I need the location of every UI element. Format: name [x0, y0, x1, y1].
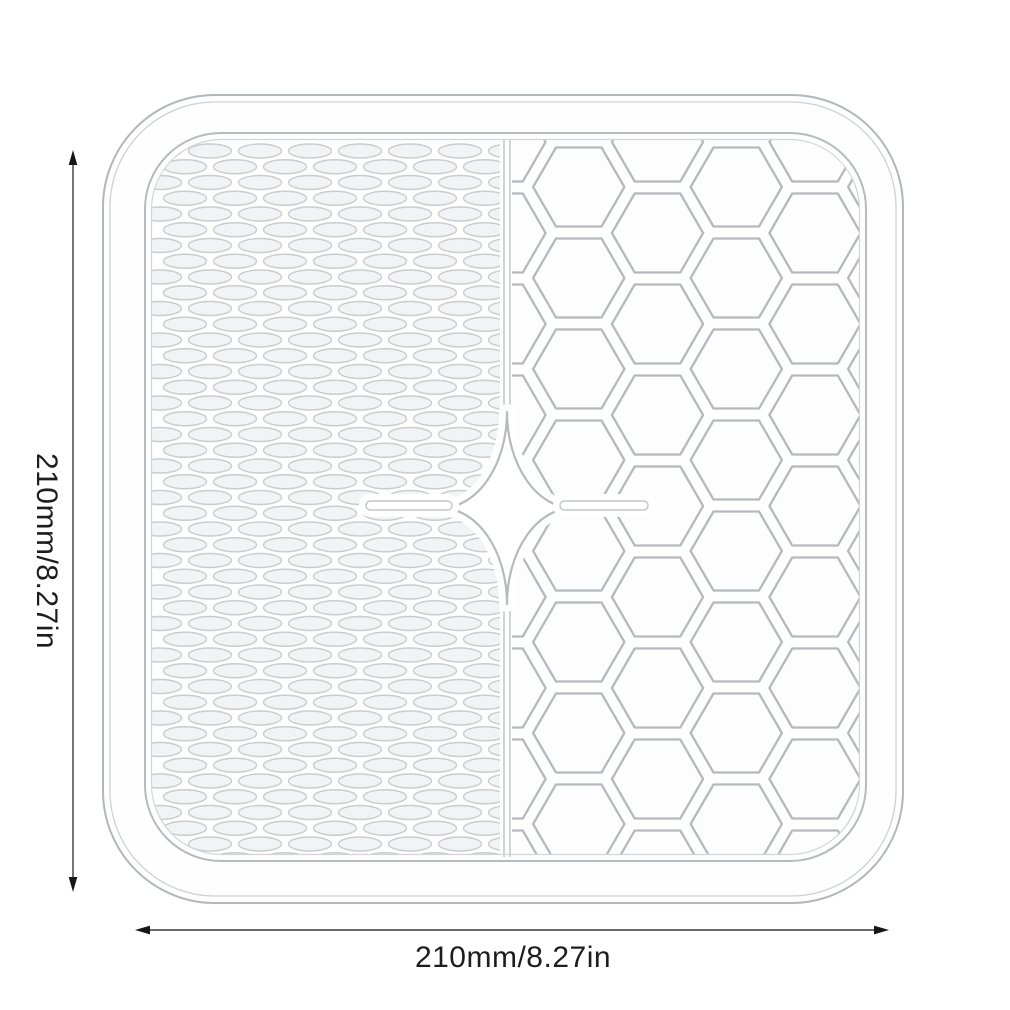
oval-bump: [389, 207, 432, 221]
oval-bump: [214, 443, 257, 457]
oval-bump: [264, 727, 307, 741]
oval-bump: [389, 396, 432, 410]
oval-bump: [439, 648, 482, 662]
oval-bump: [264, 506, 307, 520]
oval-bump: [314, 475, 357, 489]
oval-bump: [439, 617, 482, 631]
oval-bump: [289, 270, 332, 284]
oval-bump: [364, 380, 407, 394]
oval-bump: [364, 412, 407, 426]
oval-bump: [164, 664, 207, 678]
oval-bump: [314, 601, 357, 615]
oval-bump: [264, 538, 307, 552]
oval-bump: [164, 191, 207, 205]
oval-bump: [164, 349, 207, 363]
oval-bump: [314, 538, 357, 552]
oval-bump: [364, 632, 407, 646]
oval-bump: [189, 585, 232, 599]
oval-bump: [289, 459, 332, 473]
oval-bump: [414, 664, 457, 678]
oval-bump: [364, 695, 407, 709]
oval-bump: [289, 491, 332, 505]
oval-bump: [439, 144, 482, 158]
oval-bump: [414, 286, 457, 300]
oval-bump: [389, 648, 432, 662]
oval-bump: [239, 711, 282, 725]
oval-bump: [189, 176, 232, 190]
oval-bump: [314, 695, 357, 709]
oval-bump: [339, 176, 382, 190]
oval-bump: [189, 648, 232, 662]
oval-bump: [239, 333, 282, 347]
oval-bump: [314, 191, 357, 205]
oval-bump: [339, 270, 382, 284]
oval-bump: [214, 664, 257, 678]
oval-bump: [414, 160, 457, 174]
oval-bump: [164, 601, 207, 615]
oval-bump: [289, 743, 332, 757]
oval-bump: [314, 412, 357, 426]
oval-bump: [414, 601, 457, 615]
oval-bump: [389, 554, 432, 568]
oval-bump: [189, 239, 232, 253]
oval-bump: [414, 821, 457, 835]
oval-bump: [214, 380, 257, 394]
oval-bump: [389, 743, 432, 757]
oval-bump: [214, 601, 257, 615]
oval-bump: [214, 790, 257, 804]
oval-bump: [339, 302, 382, 316]
oval-bump: [164, 695, 207, 709]
oval-bump: [164, 727, 207, 741]
oval-bump: [264, 758, 307, 772]
oval-bump: [264, 349, 307, 363]
oval-bump: [289, 176, 332, 190]
oval-bump: [164, 538, 207, 552]
oval-bump: [239, 144, 282, 158]
oval-bump: [239, 617, 282, 631]
oval-bump: [189, 774, 232, 788]
oval-bump: [214, 412, 257, 426]
oval-bump: [364, 349, 407, 363]
oval-bump: [264, 790, 307, 804]
oval-bump: [314, 380, 357, 394]
oval-bump: [389, 239, 432, 253]
oval-bump: [214, 254, 257, 268]
oval-bump: [239, 554, 282, 568]
oval-bump: [264, 160, 307, 174]
oval-bump: [389, 585, 432, 599]
oval-bump: [414, 569, 457, 583]
oval-bump: [414, 317, 457, 331]
oval-bump: [339, 774, 382, 788]
oval-bump: [264, 317, 307, 331]
oval-bump: [414, 695, 457, 709]
oval-bump: [389, 302, 432, 316]
oval-bump: [164, 758, 207, 772]
oval-bump: [239, 837, 282, 851]
oval-bump: [289, 239, 332, 253]
oval-bump: [389, 837, 432, 851]
oval-bump: [439, 396, 482, 410]
oval-bump: [389, 365, 432, 379]
oval-bump: [289, 774, 332, 788]
oval-bump: [339, 680, 382, 694]
oval-bump: [339, 365, 382, 379]
oval-bump: [414, 191, 457, 205]
oval-bump: [189, 806, 232, 820]
oval-bump: [364, 223, 407, 237]
oval-bump: [214, 569, 257, 583]
oval-bump: [339, 239, 382, 253]
oval-bump: [439, 428, 482, 442]
oval-bump: [339, 617, 382, 631]
oval-bump: [439, 585, 482, 599]
oval-bump: [314, 160, 357, 174]
oval-bump: [189, 522, 232, 536]
oval-bump: [289, 617, 332, 631]
oval-bump: [189, 270, 232, 284]
oval-bump: [289, 680, 332, 694]
oval-bump: [389, 711, 432, 725]
oval-bump: [289, 554, 332, 568]
oval-bump: [289, 396, 332, 410]
oval-bump: [289, 648, 332, 662]
oval-bump: [189, 554, 232, 568]
oval-bump: [214, 695, 257, 709]
oval-bump: [314, 758, 357, 772]
oval-bump: [439, 806, 482, 820]
oval-bump: [314, 632, 357, 646]
oval-bump: [364, 727, 407, 741]
oval-bump: [214, 506, 257, 520]
oval-bump: [314, 727, 357, 741]
oval-bump: [439, 207, 482, 221]
oval-bump: [339, 711, 382, 725]
oval-bump: [289, 207, 332, 221]
oval-bump: [289, 333, 332, 347]
oval-bump: [314, 443, 357, 457]
oval-bump: [214, 758, 257, 772]
right-channel-stub: [560, 501, 648, 510]
oval-bump: [314, 223, 357, 237]
oval-bump: [289, 711, 332, 725]
oval-bump: [239, 491, 282, 505]
oval-bump: [189, 491, 232, 505]
oval-bump: [389, 428, 432, 442]
oval-bump: [214, 632, 257, 646]
oval-bump: [339, 207, 382, 221]
oval-bump: [239, 522, 282, 536]
oval-bump: [414, 380, 457, 394]
oval-bump: [214, 538, 257, 552]
oval-bump: [289, 428, 332, 442]
oval-bump: [364, 601, 407, 615]
oval-bump: [339, 806, 382, 820]
oval-bump: [364, 821, 407, 835]
oval-bump: [164, 223, 207, 237]
oval-bump: [264, 601, 307, 615]
oval-bump: [364, 538, 407, 552]
oval-bump: [239, 365, 282, 379]
oval-bump: [314, 349, 357, 363]
oval-bump: [164, 790, 207, 804]
oval-bump: [289, 585, 332, 599]
oval-bump: [239, 396, 282, 410]
oval-bump: [189, 396, 232, 410]
oval-bump: [389, 774, 432, 788]
oval-bump: [314, 506, 357, 520]
oval-bump: [214, 223, 257, 237]
oval-bump: [264, 475, 307, 489]
oval-bump: [439, 680, 482, 694]
oval-bump: [264, 254, 307, 268]
oval-bump: [389, 617, 432, 631]
oval-bump: [264, 286, 307, 300]
oval-bump: [189, 617, 232, 631]
oval-bump: [439, 743, 482, 757]
oval-bump: [414, 254, 457, 268]
oval-bump: [239, 270, 282, 284]
oval-bump: [439, 333, 482, 347]
oval-bump: [214, 475, 257, 489]
oval-bump: [364, 191, 407, 205]
oval-bump: [164, 632, 207, 646]
oval-bump: [439, 774, 482, 788]
oval-bump: [439, 459, 482, 473]
oval-bump: [389, 806, 432, 820]
oval-bump: [439, 365, 482, 379]
oval-bump: [189, 459, 232, 473]
oval-bump: [364, 790, 407, 804]
oval-bump: [164, 286, 207, 300]
oval-bump: [389, 176, 432, 190]
oval-bump: [414, 443, 457, 457]
oval-bump: [239, 302, 282, 316]
oval-bump: [214, 317, 257, 331]
oval-bump: [339, 144, 382, 158]
oval-bump: [339, 648, 382, 662]
oval-bump: [389, 522, 432, 536]
oval-bump: [439, 176, 482, 190]
oval-bump: [414, 412, 457, 426]
oval-bump: [289, 302, 332, 316]
oval-bump: [189, 743, 232, 757]
oval-bump: [164, 380, 207, 394]
oval-bump: [439, 711, 482, 725]
oval-bump: [214, 727, 257, 741]
oval-bump: [214, 160, 257, 174]
oval-bump: [264, 695, 307, 709]
oval-bump: [264, 380, 307, 394]
oval-bump: [364, 286, 407, 300]
oval-bump: [164, 475, 207, 489]
oval-bump: [414, 632, 457, 646]
oval-bump: [264, 664, 307, 678]
oval-bump: [239, 806, 282, 820]
oval-bump: [189, 207, 232, 221]
oval-bump: [439, 270, 482, 284]
oval-bump: [264, 223, 307, 237]
oval-bump: [339, 743, 382, 757]
oval-bump: [264, 412, 307, 426]
oval-bump: [314, 317, 357, 331]
oval-bump: [214, 286, 257, 300]
oval-bump: [164, 506, 207, 520]
oval-bump: [189, 428, 232, 442]
oval-bump: [264, 569, 307, 583]
oval-bump: [414, 349, 457, 363]
width-dimension-label: 210mm/8.27in: [333, 941, 693, 975]
oval-bump: [189, 144, 232, 158]
oval-bump: [364, 443, 407, 457]
oval-bump: [264, 191, 307, 205]
oval-bump: [364, 160, 407, 174]
oval-bump: [339, 428, 382, 442]
oval-bump: [364, 569, 407, 583]
oval-bump: [389, 144, 432, 158]
oval-bump: [339, 459, 382, 473]
oval-bump: [264, 443, 307, 457]
oval-bump: [414, 538, 457, 552]
oval-bump: [389, 333, 432, 347]
oval-bump: [314, 569, 357, 583]
oval-bump: [189, 711, 232, 725]
oval-bump: [264, 632, 307, 646]
oval-bump: [189, 680, 232, 694]
oval-bump: [289, 806, 332, 820]
oval-bump: [214, 349, 257, 363]
oval-bump: [314, 254, 357, 268]
oval-bump: [239, 774, 282, 788]
oval-bump: [239, 207, 282, 221]
oval-bump: [239, 648, 282, 662]
oval-bump: [389, 680, 432, 694]
oval-bump: [239, 585, 282, 599]
oval-bump: [239, 428, 282, 442]
left-channel-stub: [366, 501, 452, 510]
oval-bump: [214, 191, 257, 205]
oval-bump: [239, 680, 282, 694]
oval-bump: [164, 317, 207, 331]
oval-bump: [289, 837, 332, 851]
oval-bump: [314, 821, 357, 835]
oval-bump: [239, 176, 282, 190]
oval-bump: [414, 790, 457, 804]
oval-bump: [389, 459, 432, 473]
oval-bump: [339, 554, 382, 568]
oval-bump: [264, 821, 307, 835]
height-dimension-label: 210mm/8.27in: [29, 371, 63, 731]
oval-bump: [439, 239, 482, 253]
oval-bump: [364, 664, 407, 678]
oval-bump: [239, 459, 282, 473]
oval-bump: [314, 664, 357, 678]
oval-bump: [339, 585, 382, 599]
oval-bump: [339, 837, 382, 851]
oval-bump: [439, 554, 482, 568]
oval-bump: [189, 302, 232, 316]
oval-bump: [189, 365, 232, 379]
oval-bump: [164, 443, 207, 457]
oval-bump: [164, 412, 207, 426]
oval-bump: [289, 365, 332, 379]
oval-bump: [439, 302, 482, 316]
oval-bump: [214, 821, 257, 835]
oval-bump: [289, 522, 332, 536]
oval-bump: [339, 396, 382, 410]
oval-bump: [239, 239, 282, 253]
silicone-mat: [103, 57, 939, 955]
oval-bump: [389, 270, 432, 284]
oval-bump: [314, 790, 357, 804]
oval-bump: [364, 317, 407, 331]
oval-bump: [439, 837, 482, 851]
diagram-canvas: [0, 0, 1010, 1010]
oval-bump: [414, 223, 457, 237]
oval-bump: [164, 254, 207, 268]
oval-bump: [414, 758, 457, 772]
oval-bump: [364, 475, 407, 489]
oval-bump: [414, 475, 457, 489]
oval-bump: [189, 333, 232, 347]
oval-bump: [164, 569, 207, 583]
oval-bump: [239, 743, 282, 757]
oval-bump: [314, 286, 357, 300]
oval-bump: [364, 758, 407, 772]
oval-bump: [364, 254, 407, 268]
oval-bump: [339, 333, 382, 347]
oval-bump: [339, 522, 382, 536]
product-dimension-diagram: 210mm/8.27in 210mm/8.27in: [0, 0, 1010, 1010]
oval-bump: [289, 144, 332, 158]
oval-bump: [414, 727, 457, 741]
